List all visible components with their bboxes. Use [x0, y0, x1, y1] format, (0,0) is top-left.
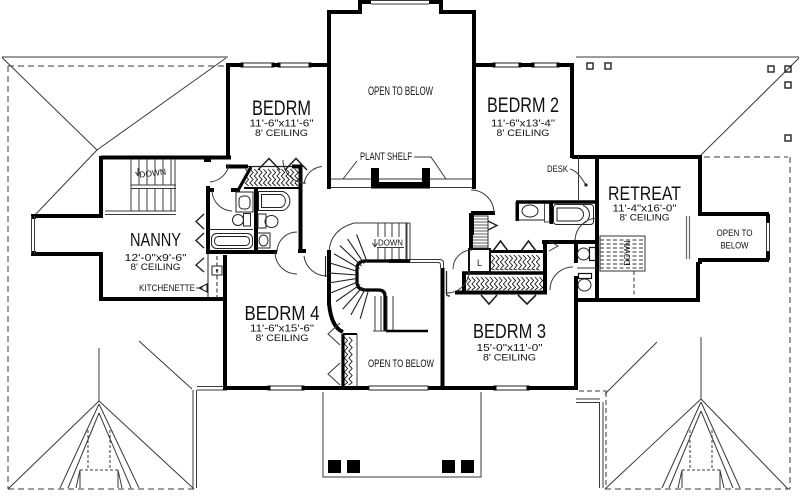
svg-text:DOWN: DOWN: [623, 240, 632, 266]
svg-text:8' CEILING: 8' CEILING: [620, 213, 670, 224]
svg-text:8' CEILING: 8' CEILING: [497, 128, 550, 139]
svg-text:DOWN: DOWN: [378, 239, 403, 248]
svg-text:DESK: DESK: [547, 164, 569, 175]
svg-text:BEDRM 3: BEDRM 3: [473, 321, 546, 343]
svg-text:8' CEILING: 8' CEILING: [255, 128, 308, 139]
svg-text:8' CEILING: 8' CEILING: [256, 333, 309, 344]
svg-text:PLANT SHELF: PLANT SHELF: [360, 151, 412, 163]
svg-text:8' CEILING: 8' CEILING: [131, 262, 181, 273]
svg-text:NANNY: NANNY: [130, 230, 181, 250]
svg-text:BEDRM 2: BEDRM 2: [487, 94, 559, 117]
svg-text:L: L: [477, 258, 482, 268]
svg-text:OPEN TO BELOW: OPEN TO BELOW: [368, 358, 434, 370]
svg-text:OPEN TO BELOW: OPEN TO BELOW: [368, 84, 433, 98]
svg-text:KITCHENETTE: KITCHENETTE: [139, 283, 195, 293]
svg-text:DOWN: DOWN: [139, 166, 167, 179]
svg-text:8' CEILING: 8' CEILING: [483, 353, 536, 364]
svg-text:BELOW: BELOW: [721, 241, 749, 252]
svg-text:OPEN TO: OPEN TO: [717, 228, 753, 239]
